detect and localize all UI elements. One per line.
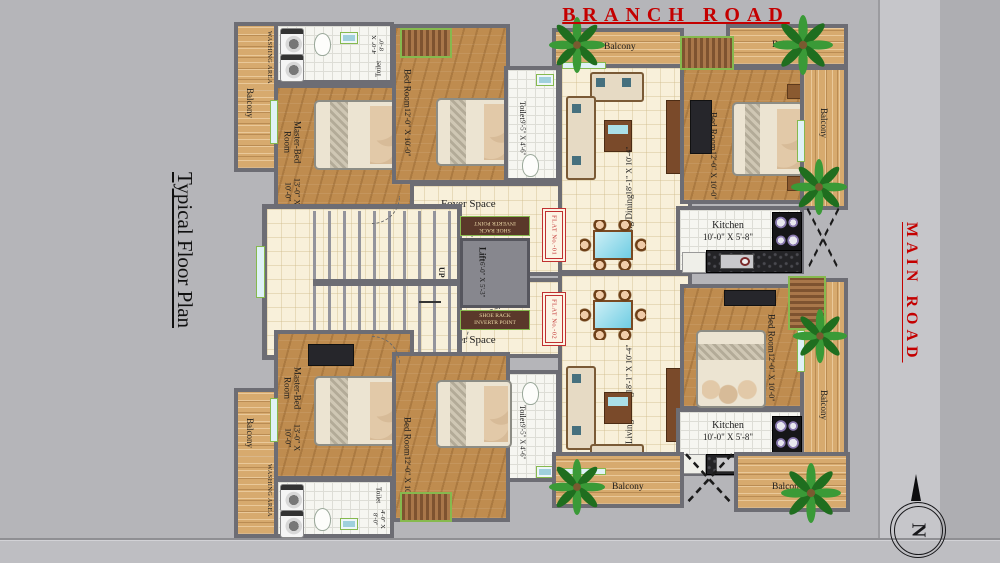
compass-north-letter: N (907, 523, 930, 537)
living-dining-flat2: Living/Dining 18'-1" X 10'-4" (558, 272, 692, 474)
shoe-rack-top: SHOE RACK INVERTR POINT (460, 216, 530, 236)
washing-machine (280, 28, 304, 56)
lift-shaft: Lift 6'-0" X 5'-3" (460, 238, 530, 308)
sofa (590, 72, 644, 102)
sofa (566, 366, 596, 450)
up-arrow-line (419, 301, 441, 303)
tv-table (604, 392, 632, 424)
washing-area-bottom-label: WASHING AREA (266, 464, 273, 536)
toilet-top-left: Toilet 4'-0" X 8'-0" (274, 22, 394, 84)
wardrobe (400, 28, 452, 58)
toilet-flat1: Toilet 9'-5" X 4'-6" (504, 66, 560, 182)
washing-machine (280, 54, 304, 82)
duct-open (684, 452, 734, 506)
compass-icon: N (890, 502, 946, 558)
wardrobe (400, 492, 452, 522)
balcony-label: Balcony (604, 42, 636, 52)
plan-title: Typical Floor Plan (172, 172, 197, 376)
branch-road-label: BRANCH ROAD (560, 4, 792, 27)
floor-plan-canvas: Foyer Space Foyer Space Living/Dining 18… (0, 0, 1000, 563)
double-bed (314, 376, 400, 446)
toilet-wc (314, 508, 331, 531)
double-bed (314, 100, 400, 170)
bedroom-flat1: Bed Room 12'-0" X 10'-0" (680, 66, 804, 204)
window (270, 100, 278, 144)
window (270, 398, 278, 442)
lift-core: SHOE RACK INVERTR POINT Lift 6'-0" X 5'-… (460, 216, 530, 330)
kitchen-cabinet (682, 252, 706, 273)
toilet-wc (522, 154, 539, 177)
stair-rail (313, 279, 457, 286)
toilet-sink (340, 32, 358, 44)
palm-tree (780, 462, 842, 524)
kitchen-flat1: Kitchen 10'-0" X 5'-8" (676, 206, 804, 274)
palm-tree (790, 158, 848, 216)
main-road-label: MAIN ROAD (902, 222, 920, 372)
dining-set (580, 290, 646, 340)
bedroom-top-left: Bed Room 12'-0" X 10'-0" (392, 24, 510, 184)
kitchen-flat1-label: Kitchen 10'-0" X 5'-8" (686, 219, 770, 244)
dining-chairs (580, 220, 646, 270)
toilet-sink (536, 74, 554, 86)
toilet-bottom-left: Toilet 4'-0" X 8'-0" (274, 478, 394, 538)
bedroom-bottom-left: Bed Room 12'-0" X 10'-0" (392, 352, 510, 522)
kitchen-sink (720, 254, 754, 269)
living-dining-flat1: Living/Dining 18'-1" X 10'-4" (558, 64, 692, 274)
toilet-flat1-label: Toilet 9'-5" X 4'-6" (518, 92, 527, 164)
stove (772, 416, 802, 454)
toilet-flat2-label: Toilet 9'-5" X 4'-6" (518, 396, 527, 468)
main-road-far-band (940, 0, 1000, 563)
toilet-wc (314, 33, 331, 56)
toilet-bottom-left-label: Toilet 4'-0" X 8'-0" (371, 487, 386, 535)
double-bed (436, 380, 512, 448)
balcony-glass-door (797, 120, 805, 162)
tv-cabinet (308, 344, 354, 366)
palm-tree (548, 458, 606, 516)
balcony-strip-top-left: WASHING AREA Balcony (234, 22, 278, 172)
stove (772, 212, 802, 252)
washing-area-top-label: WASHING AREA (266, 31, 273, 103)
flat-01-label: FLAT No.-01 (542, 208, 566, 262)
flat-02-label: FLAT No.-02 (542, 292, 566, 346)
balcony-label: Balcony (245, 418, 255, 482)
stairwell-window (256, 246, 265, 298)
double-bed (696, 330, 766, 408)
dining-set (580, 220, 646, 270)
stairs-up-label: UP (437, 267, 446, 299)
master-bedroom-bottom-label: Master-Bed Room 13'-0" X 10'-0" (282, 360, 303, 458)
kitchen-flat2-label: Kitchen 10'-0" X 5'-8" (686, 419, 770, 444)
bedroom-flat1-label: Bed Room 12'-0" X 10'-0" (708, 110, 718, 202)
washing-machine (280, 484, 304, 512)
master-bedroom-top-label: Master-Bed Room 13'-0" X 10'-0" (282, 114, 303, 212)
dresser (724, 290, 776, 306)
bedroom-top-left-label: Bed Room 12'-0" X 10'-0" (402, 64, 412, 162)
shoe-rack-bottom: SHOE RACK INVERTR POINT (460, 310, 530, 330)
lift-label: Lift 6'-0" X 5'-3" (477, 243, 487, 301)
north-arrow-icon (911, 474, 921, 501)
balcony-label: Balcony (819, 390, 829, 456)
wardrobe (680, 36, 734, 70)
stair-flight-upper (313, 211, 457, 279)
balcony-label: Balcony (245, 88, 255, 152)
toilet-sink (340, 518, 358, 530)
bedroom-flat2-label: Bed Room 12'-0" X 10'-0" (766, 312, 776, 404)
palm-tree (792, 308, 848, 364)
bedroom-flat2: Bed Room 12'-0" X 10'-0" (680, 284, 804, 410)
washing-machine (280, 510, 304, 538)
sofa (566, 96, 596, 180)
double-bed (436, 98, 512, 166)
dining-chairs (580, 290, 646, 340)
toilet-top-left-label: Toilet 4'-0" X 8'-0" (371, 29, 386, 77)
balcony-label: Balcony (612, 482, 644, 492)
bottom-road-band (0, 538, 1000, 563)
